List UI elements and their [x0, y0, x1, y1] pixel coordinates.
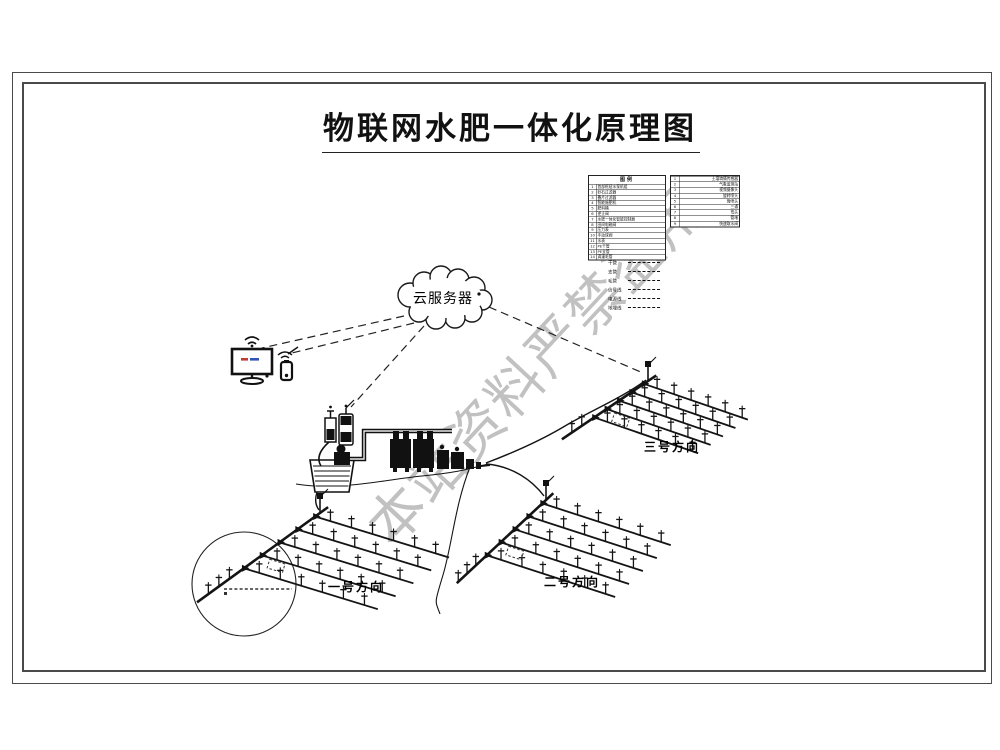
line-sample-row: 信号线: [608, 285, 693, 294]
line-type-samples: 干管支管毛管信号线电源线地埋线: [608, 258, 693, 312]
legend-row: 12PE干管: [589, 243, 665, 248]
legend-row: 5微喷头: [671, 198, 739, 204]
legend-row: 4旋转喷头: [671, 193, 739, 199]
drawing-sheet: 本站资料严禁盗用 物联网水肥一体化原理图: [0, 0, 1000, 750]
legend-row: 8田间电磁阀: [589, 222, 665, 227]
detail-callout: [192, 532, 296, 636]
field-two-label: 二号方向: [544, 574, 600, 589]
legend-table-secondary: 1土壤墒情传感器2气象监测站3视频摄像头4旋转喷头5微喷头6三通7弯头8管堵9快…: [670, 175, 740, 227]
wifi-icon: [245, 337, 259, 344]
field-one-label: 一号方向: [328, 579, 384, 594]
legend-title: 图例: [589, 176, 665, 184]
legend-row: 9压力表: [589, 227, 665, 232]
diagram-canvas: 云服务器: [0, 0, 1000, 750]
cloud-label: 云服务器: [413, 291, 473, 307]
legend-row: 2砂石过滤器: [589, 189, 665, 194]
legend-row: 3叠片过滤器: [589, 195, 665, 200]
legend-row: 1首部枢纽水泵机组: [589, 184, 665, 189]
legend-row: 6逆止阀: [589, 211, 665, 216]
pump-icon: [334, 445, 350, 466]
line-sample-row: 干管: [608, 258, 693, 267]
phone-icon: [281, 360, 292, 380]
filter-tanks-icon: [390, 431, 434, 472]
field-three-label: 三号方向: [644, 439, 700, 454]
field-grid-three: [562, 357, 748, 453]
manifold-valves-icon: [437, 445, 490, 469]
fields-layer: [197, 357, 748, 609]
field-grid-one: [197, 489, 449, 609]
legend-row: 1土壤墒情传感器: [671, 176, 739, 182]
legend-row: 8管堵: [671, 215, 739, 221]
legend-row: 13PE支管: [589, 249, 665, 254]
line-sample-row: 电源线: [608, 294, 693, 303]
legend-row: 5肥料桶: [589, 206, 665, 211]
legend-row: 10手动球阀: [589, 233, 665, 238]
pump-station: [310, 400, 490, 492]
fertilizer-tank-icon: [325, 406, 336, 442]
line-sample-row: 支管: [608, 267, 693, 276]
legend-row: 11水表: [589, 238, 665, 243]
cloud-server: 云服务器: [398, 266, 492, 329]
legend-row: 6三通: [671, 204, 739, 210]
legend-row: 4智能施肥机: [589, 200, 665, 205]
legend-row: 7弯头: [671, 210, 739, 216]
legend-row: 7水肥一体化智能控制器: [589, 216, 665, 221]
legend-row: 9快速取水阀: [671, 221, 739, 227]
legend-table-main: 图例 1首部枢纽水泵机组2砂石过滤器3叠片过滤器4智能施肥机5肥料桶6逆止阀7水…: [588, 175, 666, 261]
monitor-icon: [232, 349, 272, 384]
line-sample-row: 毛管: [608, 276, 693, 285]
line-sample-row: 地埋线: [608, 303, 693, 312]
monitor-station: [232, 337, 272, 384]
legend-row: 3视频摄像头: [671, 187, 739, 193]
legend-row: 2气象监测站: [671, 182, 739, 188]
